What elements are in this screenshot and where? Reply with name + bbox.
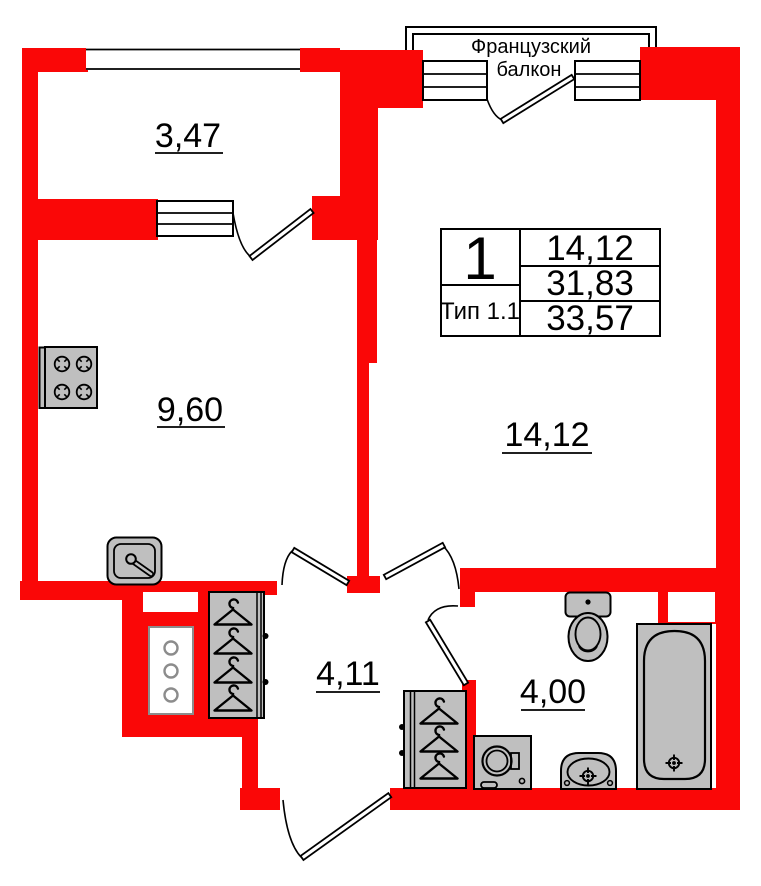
living-hall-door (384, 543, 459, 589)
wall-segment (460, 568, 717, 592)
loggia-area-label: 3,47 (155, 117, 221, 155)
wall-segment (357, 240, 377, 363)
kitchen-hall-door (282, 548, 349, 585)
floor-plan: 3,47 9,60 14,12 4,11 4,00 Французский ба… (0, 0, 761, 886)
entry-door (283, 793, 391, 860)
bath-area-label: 4,00 (520, 673, 586, 711)
french-balcony-window-left (423, 61, 487, 100)
bathroom-door (426, 606, 468, 685)
wall-segment (22, 199, 158, 240)
bathtub-icon (637, 624, 711, 789)
wall-segment (357, 363, 369, 578)
rooms-count-value: 1 (463, 225, 496, 292)
wall-niche (668, 592, 715, 622)
stove-icon (40, 347, 98, 408)
french-balcony-door (487, 75, 574, 123)
living-area-value: 14,12 (546, 229, 634, 268)
wall-segment (390, 788, 738, 810)
wall-segment (20, 581, 122, 600)
french-balcony-window-right (575, 61, 640, 100)
wall-segment (460, 590, 475, 607)
kitchen-window (157, 201, 233, 236)
living-area-label: 14,12 (504, 416, 589, 454)
wall-segment (312, 196, 340, 240)
wardrobe-icon (209, 592, 269, 718)
toilet-icon (566, 593, 611, 662)
apartment-info-table: 1 Тип 1.1 14,12 31,83 33,57 (440, 225, 660, 338)
vent-shaft-icon (149, 627, 193, 714)
wall-segment (300, 48, 340, 72)
french-balcony-caption-line1: Французский (471, 36, 591, 58)
walls (20, 47, 740, 810)
french-balcony-caption: Французский балкон (471, 36, 591, 81)
kitchen-sink-icon (108, 538, 162, 585)
area-without-balcony-value: 31,83 (546, 264, 634, 303)
total-area-value: 33,57 (546, 299, 634, 338)
wall-segment (640, 47, 740, 100)
apartment-type-label: Тип 1.1 (440, 298, 520, 325)
wall-segment (240, 788, 280, 810)
kitchen-area-label: 9,60 (157, 391, 223, 429)
french-balcony-caption-line2: балкон (497, 59, 562, 81)
wall-segment (347, 576, 380, 593)
bathroom-sink-icon (561, 753, 616, 789)
wall-segment (340, 70, 378, 240)
hall-area-label: 4,11 (316, 655, 380, 693)
floor-plan-drawing: 3,47 9,60 14,12 4,11 4,00 Французский ба… (0, 0, 761, 886)
wardrobe-icon (399, 691, 466, 788)
wall-niche (143, 592, 198, 612)
washing-machine-icon (474, 736, 531, 789)
wall-segment (716, 100, 740, 810)
wall-segment (22, 48, 38, 600)
kitchen-loggia-door (233, 209, 314, 260)
loggia-glazing-window (86, 48, 300, 70)
